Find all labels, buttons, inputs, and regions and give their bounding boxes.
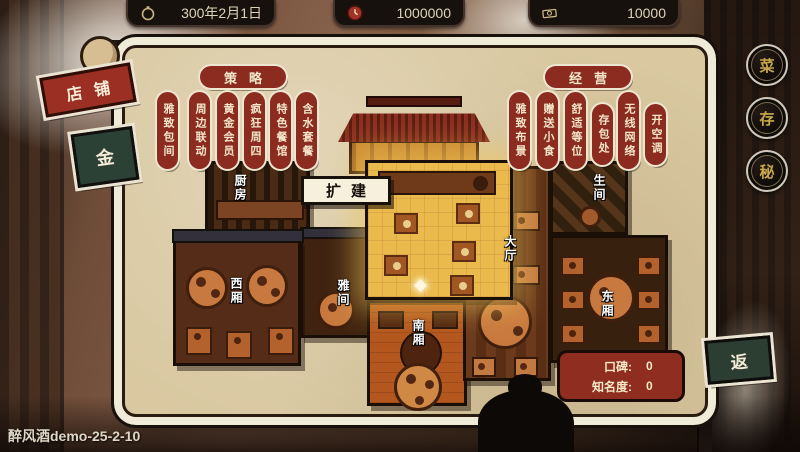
bench xyxy=(512,211,540,231)
calendar-gourd-icon xyxy=(140,5,156,21)
fame-value: 0 xyxy=(646,379,672,393)
courtyard-counter xyxy=(378,171,496,195)
roof-strip xyxy=(172,229,304,243)
table xyxy=(384,255,408,276)
bench xyxy=(472,357,496,377)
bench xyxy=(512,265,540,285)
room-label-restroom: 生间 xyxy=(593,174,605,202)
round-table xyxy=(394,363,442,411)
stool xyxy=(561,324,585,344)
strategy-item-local-linkage[interactable]: 周边联动 xyxy=(189,92,210,169)
stool xyxy=(637,256,661,276)
save-button[interactable]: 存 xyxy=(746,97,788,139)
strategy-item-crazy-thursday[interactable]: 疯狂周四 xyxy=(244,92,265,169)
fame-label: 知名度: xyxy=(570,378,646,395)
room-label-kitchen: 厨房 xyxy=(234,174,246,202)
table xyxy=(394,213,418,234)
stool xyxy=(637,290,661,310)
table xyxy=(456,203,480,224)
menu-button[interactable]: 菜 xyxy=(746,44,788,86)
operations-item-wifi[interactable]: 无线网络 xyxy=(618,92,639,169)
strategy-header: 策略 xyxy=(200,66,286,88)
operations-item-bag-storage[interactable]: 存包处 xyxy=(592,104,613,165)
back-button[interactable]: 返 xyxy=(704,335,774,385)
strategy-item-gold-member[interactable]: 黄金会员 xyxy=(217,92,238,169)
strategy-item-water-set[interactable]: 含水套餐 xyxy=(296,92,317,169)
reputation-row: 口碑: 0 xyxy=(570,358,672,375)
game-screen: 300年2月1日 1000000 10000 店铺 金 xyxy=(0,0,800,452)
operations-item-air-conditioning[interactable]: 开空调 xyxy=(645,104,666,165)
date-value: 300年2月1日 xyxy=(181,3,262,23)
room-kitchen[interactable]: 厨房 xyxy=(205,161,310,236)
date-panel: 300年2月1日 xyxy=(126,0,276,27)
gate-roof xyxy=(338,104,490,142)
round-table xyxy=(478,295,532,349)
room-label-east-wing: 东厢 xyxy=(601,290,613,318)
stool xyxy=(186,327,212,355)
stool xyxy=(637,324,661,344)
banknote-icon xyxy=(542,5,558,21)
pot-icon xyxy=(473,176,488,191)
roof-strip xyxy=(300,227,374,239)
round-table xyxy=(186,267,228,309)
room-private[interactable]: 雅间 xyxy=(300,236,374,338)
expand-button[interactable]: 扩建 xyxy=(301,176,391,205)
table xyxy=(378,311,404,329)
kitchen-counter xyxy=(216,200,304,220)
table xyxy=(450,275,474,296)
reputation-value: 0 xyxy=(646,359,672,373)
banknote-panel: 10000 xyxy=(528,0,680,27)
sparkle-icon xyxy=(414,279,427,292)
secret-button[interactable]: 秘 xyxy=(746,150,788,192)
stool xyxy=(561,256,585,276)
round-table xyxy=(246,265,288,307)
room-south-wing[interactable]: 南厢 xyxy=(367,300,467,406)
table xyxy=(452,241,476,262)
stool xyxy=(226,331,252,359)
stats-panel: 口碑: 0 知名度: 0 xyxy=(557,350,685,402)
gold-sign-tab[interactable]: 金 xyxy=(71,126,140,188)
reputation-label: 口碑: xyxy=(570,358,646,375)
banknote-value: 10000 xyxy=(627,5,666,21)
stool xyxy=(561,290,585,310)
strategy-item-private-rooms[interactable]: 雅致包间 xyxy=(157,92,178,169)
operations-item-comfy-waiting[interactable]: 舒适等位 xyxy=(565,92,586,169)
room-label-main-hall: 大厅 xyxy=(504,235,516,263)
room-west-wing[interactable]: 西厢 xyxy=(173,240,301,366)
gate-roof-ridge xyxy=(366,96,462,107)
stool xyxy=(268,327,294,355)
operations-header: 经营 xyxy=(545,66,631,88)
room-restroom[interactable]: 生间 xyxy=(550,161,628,235)
room-label-private: 雅间 xyxy=(337,279,349,307)
room-east-wing[interactable]: 东厢 xyxy=(550,235,668,363)
strategy-item-special-restaurant[interactable]: 特色餐馆 xyxy=(270,92,291,169)
cash-panel: 1000000 xyxy=(333,0,465,27)
version-label: 醉风酒demo-25-2-10 xyxy=(8,426,140,446)
room-label-west-wing: 西厢 xyxy=(230,277,242,305)
figure xyxy=(579,206,601,228)
clock-coin-icon xyxy=(347,5,363,21)
operations-item-elegant-decor[interactable]: 雅致布景 xyxy=(509,92,530,169)
table xyxy=(432,311,458,329)
fame-row: 知名度: 0 xyxy=(570,378,672,395)
cash-value: 1000000 xyxy=(396,5,451,21)
character-silhouette xyxy=(478,390,574,452)
room-label-south-wing: 南厢 xyxy=(412,319,424,347)
operations-item-free-snacks[interactable]: 赠送小食 xyxy=(537,92,558,169)
